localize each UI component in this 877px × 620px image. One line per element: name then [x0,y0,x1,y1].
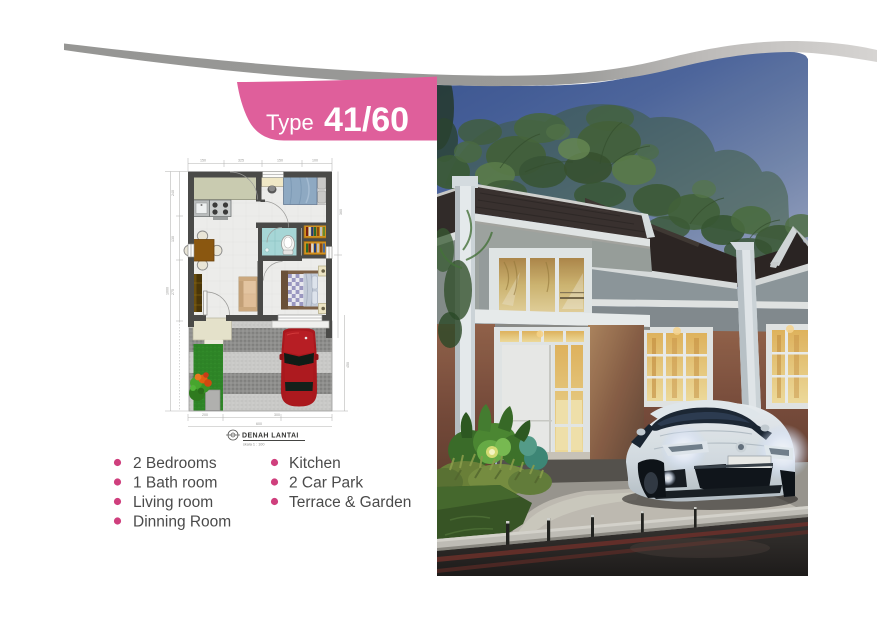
svg-text:2 Car Park: 2 Car Park [289,475,363,492]
svg-text:41/60: 41/60 [324,101,409,139]
svg-text:skala 1 : 100: skala 1 : 100 [243,443,265,447]
svg-text:300: 300 [274,413,280,417]
svg-text:Kitchen: Kitchen [289,455,341,472]
svg-text:325: 325 [238,159,244,163]
svg-text:Dinning Room: Dinning Room [133,514,231,531]
svg-text:Type: Type [266,110,314,135]
svg-text:1000: 1000 [166,287,170,295]
svg-text:240: 240 [171,190,175,196]
svg-text:150: 150 [277,159,283,163]
svg-text:DENAH LANTAI: DENAH LANTAI [242,433,299,440]
svg-text:130: 130 [171,236,175,242]
svg-text:275: 275 [171,289,175,295]
svg-text:200: 200 [202,413,208,417]
svg-text:450: 450 [346,362,350,368]
svg-text:600: 600 [256,422,262,426]
svg-text:150: 150 [200,159,206,163]
svg-text:2 Bedrooms: 2 Bedrooms [133,455,217,472]
svg-text:Living room: Living room [133,494,213,511]
svg-text:360: 360 [339,209,343,215]
svg-text:1 Bath room: 1 Bath room [133,475,217,492]
svg-text:Terrace & Garden: Terrace & Garden [289,494,411,511]
svg-text:100: 100 [312,159,318,163]
